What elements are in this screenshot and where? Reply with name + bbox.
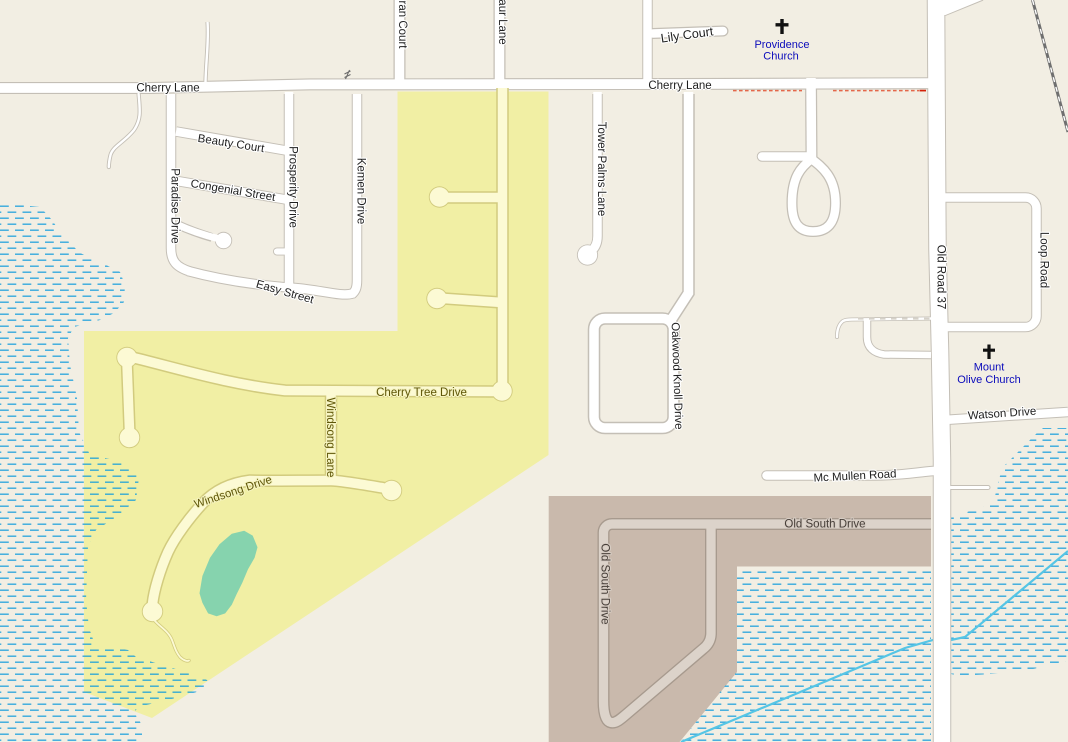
- svg-text:Providence: Providence: [754, 39, 809, 51]
- svg-text:Cherry Lane: Cherry Lane: [648, 80, 711, 92]
- svg-text:ran Court: ran Court: [396, 1, 408, 50]
- svg-text:Loop Road: Loop Road: [1038, 232, 1050, 288]
- svg-text:Paradise Drive: Paradise Drive: [169, 168, 181, 243]
- svg-text:Windsong Lane: Windsong Lane: [324, 398, 336, 478]
- svg-text:Cherry Tree Drive: Cherry Tree Drive: [376, 387, 467, 399]
- svg-text:Kemen Drive: Kemen Drive: [355, 158, 367, 224]
- svg-text:Cherry Lane: Cherry Lane: [136, 83, 199, 95]
- svg-text:Olive Church: Olive Church: [957, 374, 1021, 386]
- svg-text:aur Lane: aur Lane: [496, 0, 508, 45]
- svg-text:Old South Drive: Old South Drive: [784, 519, 865, 531]
- svg-text:Church: Church: [763, 51, 798, 63]
- svg-text:Mount: Mount: [974, 362, 1005, 374]
- svg-text:Tower Palms Lane: Tower Palms Lane: [595, 122, 607, 217]
- svg-text:Old South Drive: Old South Drive: [599, 543, 611, 624]
- svg-text:Old Road 37: Old Road 37: [935, 245, 947, 310]
- svg-text:Prosperity Drive: Prosperity Drive: [287, 146, 299, 228]
